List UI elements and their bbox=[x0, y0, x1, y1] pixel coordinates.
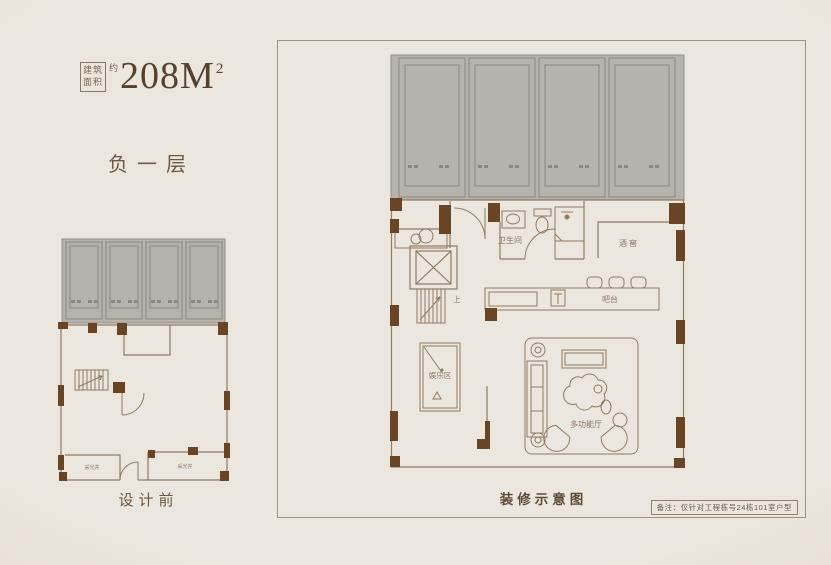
parking-stalls-left bbox=[62, 239, 225, 323]
basin-icon bbox=[419, 229, 433, 243]
left-plan-caption: 设计前 bbox=[86, 489, 206, 510]
side-table-icon bbox=[531, 343, 545, 357]
bar-counter bbox=[485, 288, 659, 310]
stairs bbox=[417, 289, 445, 323]
room-label-lightwell-right: 采光井 bbox=[177, 463, 192, 470]
left-plan-walls bbox=[61, 325, 227, 480]
area-value: 208M2 bbox=[120, 60, 223, 92]
area-superscript: 2 bbox=[216, 61, 225, 77]
armchair-icon bbox=[538, 423, 572, 457]
parking-stalls-right bbox=[391, 55, 684, 200]
decoration-plan: 上 卫生间 酒窖 bbox=[390, 54, 686, 471]
multi-hall-furniture bbox=[525, 338, 638, 457]
room-label-bathroom: 卫生间 bbox=[498, 235, 522, 245]
left-plan-stairs bbox=[75, 370, 108, 390]
toilet-tank bbox=[534, 209, 551, 216]
bar-stools bbox=[587, 277, 646, 288]
area-boxed-label: 建筑面积 bbox=[80, 62, 106, 92]
room-label-lightwell-left: 采光井 bbox=[84, 464, 99, 471]
decoration-panel: 上 卫生间 酒窖 bbox=[277, 40, 806, 518]
area-number: 208M bbox=[120, 55, 215, 97]
armchair-icon bbox=[598, 423, 632, 457]
area-approx-label: 约 bbox=[109, 61, 118, 74]
left-plan-wall-blocks bbox=[58, 322, 230, 481]
side-table-icon bbox=[531, 433, 545, 447]
elevator bbox=[410, 246, 457, 289]
toilet-icon bbox=[536, 217, 548, 233]
area-badge: 建筑面积 约 208M2 bbox=[80, 60, 223, 92]
shower-head-icon bbox=[565, 215, 569, 219]
note-box: 备注：仅针对工程栋号24栋101室户型 bbox=[651, 500, 798, 515]
room-label-multi-hall: 多功能厅 bbox=[570, 419, 602, 429]
note-text: 备注：仅针对工程栋号24栋101室户型 bbox=[657, 503, 792, 512]
stairs-up-label: 上 bbox=[453, 295, 461, 304]
room-label-wine-cellar: 酒窖 bbox=[619, 238, 639, 248]
floorplan-poster: 建筑面积 约 208M2 负一层 bbox=[0, 0, 831, 565]
left-plan-doors bbox=[120, 393, 144, 480]
room-label-bar: 吧台 bbox=[602, 294, 618, 304]
sofa bbox=[527, 361, 547, 437]
right-plan-wall-blocks bbox=[390, 198, 685, 468]
room-label-entertainment: 娱乐区 bbox=[429, 370, 452, 380]
sink-icon bbox=[507, 214, 520, 224]
rack-triangle-icon bbox=[433, 392, 441, 399]
floor-title: 负一层 bbox=[84, 148, 210, 177]
right-plan-walls bbox=[392, 200, 685, 467]
before-design-plan: 采光井 采光井 bbox=[58, 237, 230, 483]
